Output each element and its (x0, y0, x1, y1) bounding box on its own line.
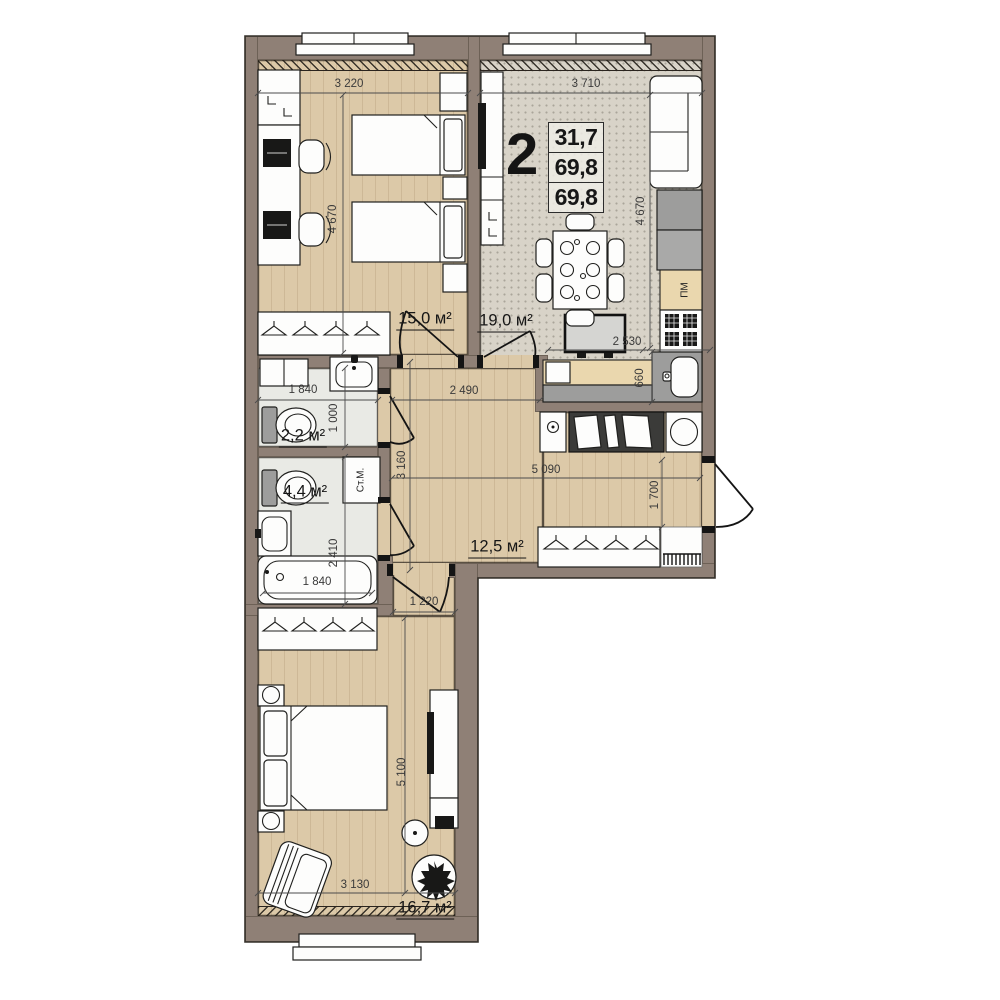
bedroom2-stool (402, 820, 428, 846)
door-entrance (702, 456, 753, 533)
wc-sink (330, 355, 378, 391)
fixtures-overlay (0, 0, 1000, 1000)
bedroom1-corner-shelf (258, 70, 300, 125)
bedroom2-bed (260, 706, 387, 810)
dim-living-height: 4 670 (635, 197, 647, 226)
shoe-cabinet (569, 412, 664, 452)
dim-living-width: 3 710 (572, 78, 601, 90)
dishwasher-label: ПМ (680, 282, 691, 298)
door-living (477, 331, 539, 368)
dim-kitchen-counter-width: 2 530 (613, 336, 642, 348)
entrance-doormat (661, 527, 702, 567)
window-top-left (296, 33, 414, 55)
apartment-rooms-count: 2 (506, 126, 536, 184)
dim-bedroom2-height: 5 100 (396, 758, 408, 787)
bedroom1-nightstand-top (440, 73, 467, 111)
plant (412, 855, 456, 901)
dim-bedroom1-width: 3 220 (335, 78, 364, 90)
dim-wc-width: 1 840 (289, 384, 318, 396)
dim-bathroom-depth: 2 410 (328, 539, 340, 568)
dim-hallway-height: 3 160 (396, 451, 408, 480)
dim-wc-depth: 1 000 (328, 404, 340, 433)
window-bottom (293, 934, 421, 960)
bedroom2-nightstand-bottom (258, 811, 284, 832)
armchair (261, 839, 334, 919)
bedroom2-nightstand-top (258, 685, 284, 706)
hallway-appliance-washer (666, 412, 702, 452)
bedroom1-bed-2 (352, 202, 465, 262)
stove (660, 310, 702, 352)
wc-cabinet (260, 359, 308, 386)
apartment-living-area: 31,7 (549, 123, 603, 153)
hallway-wardrobe (538, 527, 660, 567)
bedroom1-desk-chairs (299, 140, 331, 246)
bathroom-area-label: 4,4 м² (281, 483, 329, 504)
dining-table (553, 231, 607, 309)
door-bathroom (378, 497, 414, 561)
bedroom1-bed-1 (352, 115, 465, 175)
dim-hallway-top-width: 2 490 (450, 385, 479, 397)
kitchen-tall-cabinet (657, 190, 702, 230)
dim-bedroom2-width: 3 130 (341, 879, 370, 891)
dim-corridor-width: 1 220 (410, 596, 439, 608)
apartment-info-box: 31,7 69,8 69,8 (548, 122, 604, 213)
window-top-right (503, 33, 651, 55)
living-tv-console (478, 72, 503, 245)
apartment-area: 69,8 (549, 153, 603, 183)
bath-sink (255, 511, 291, 556)
bedroom1-wardrobe (258, 312, 390, 355)
door-wc (378, 388, 414, 448)
bedroom1-dresser (443, 264, 467, 292)
bedroom1-nightstand-mid (443, 177, 467, 199)
dim-entry-wall: 1 700 (649, 481, 661, 510)
bedroom2-console (427, 690, 458, 829)
kitchen-living-area-label: 19,0 м² (477, 312, 535, 333)
apartment-total-area: 69,8 (549, 183, 603, 212)
hallway-pouf (540, 412, 566, 452)
bedroom2-wardrobe (258, 608, 377, 650)
dim-bathtub-length: 1 840 (303, 576, 332, 588)
dim-hallway-width: 5 090 (532, 464, 561, 476)
washing-machine-label: Ст.М. (356, 468, 367, 493)
dim-kitchen-counter-depth: 660 (634, 368, 646, 387)
hallway-area-label: 12,5 м² (468, 538, 526, 559)
bedroom1-area-label: 15,0 м² (396, 310, 454, 331)
kitchen-sink-counter (652, 352, 702, 402)
refrigerator (657, 230, 702, 270)
wc-area-label: 2,2 м² (279, 427, 327, 448)
floor-plan: 2 31,7 69,8 69,8 15,0 м² 19,0 м² 2,2 м² … (0, 0, 1000, 1000)
dim-bedroom1-height: 4 670 (327, 205, 339, 234)
bedroom1-desk (258, 125, 300, 265)
bedroom2-area-label: 16,7 м² (396, 899, 454, 920)
